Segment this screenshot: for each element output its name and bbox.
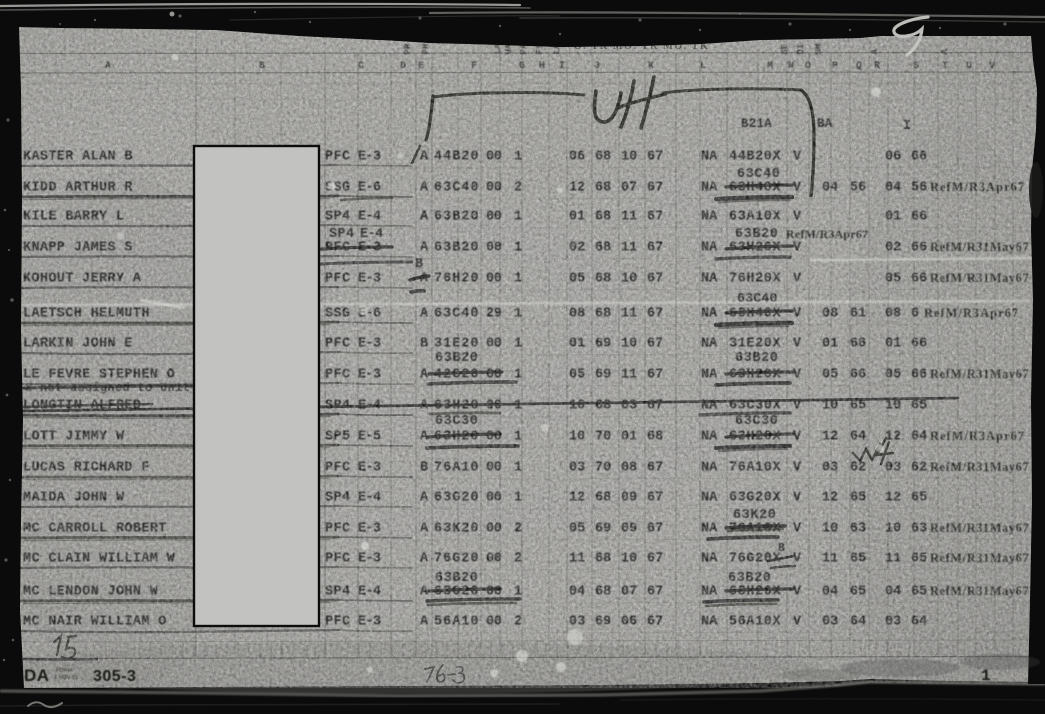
svg-text:FORM: FORM bbox=[56, 668, 73, 674]
svg-text:DA: DA bbox=[24, 666, 50, 685]
svg-text:1: 1 bbox=[981, 667, 991, 685]
svg-text:305-3: 305-3 bbox=[93, 668, 136, 685]
svg-text:1 NOV 61: 1 NOV 61 bbox=[54, 675, 78, 681]
